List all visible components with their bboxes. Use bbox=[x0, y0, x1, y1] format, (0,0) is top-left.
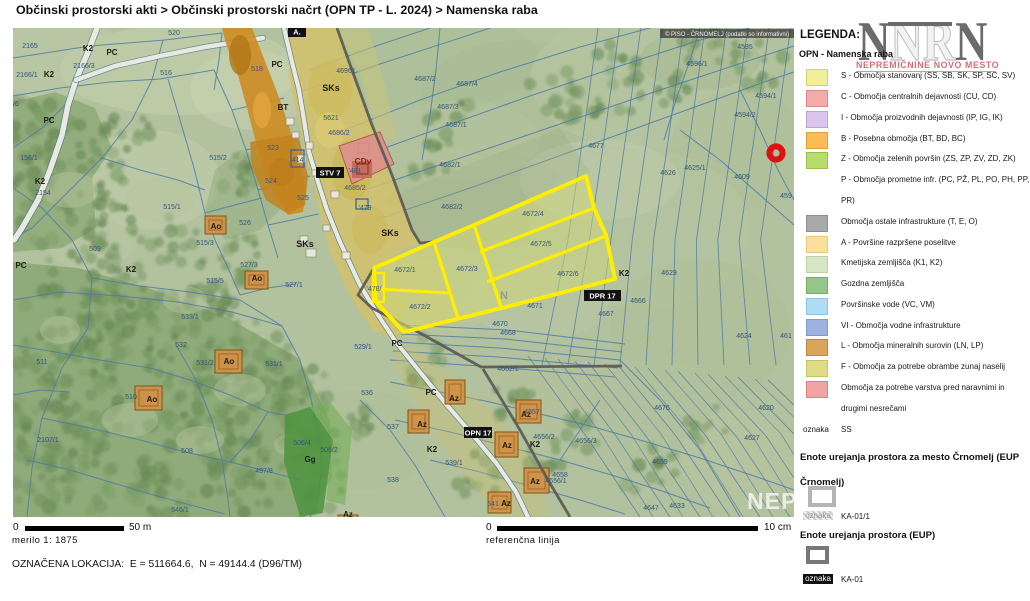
svg-text:4672/6: 4672/6 bbox=[557, 271, 579, 278]
svg-text:4666: 4666 bbox=[630, 298, 646, 305]
svg-text:539/1: 539/1 bbox=[445, 460, 463, 467]
svg-text:527/1: 527/1 bbox=[285, 282, 303, 289]
svg-text:4672/5: 4672/5 bbox=[530, 241, 552, 248]
svg-text:PC: PC bbox=[43, 116, 54, 125]
svg-text:157/6: 157/6 bbox=[13, 101, 19, 108]
svg-text:461: 461 bbox=[780, 333, 792, 340]
svg-text:4687/4: 4687/4 bbox=[456, 81, 478, 88]
svg-text:4594/2: 4594/2 bbox=[734, 112, 756, 119]
svg-text:4667: 4667 bbox=[598, 311, 614, 318]
svg-text:156/1: 156/1 bbox=[20, 155, 38, 162]
svg-text:BT: BT bbox=[278, 103, 289, 112]
svg-text:538: 538 bbox=[387, 477, 399, 484]
svg-text:K2: K2 bbox=[619, 269, 630, 278]
svg-text:526: 526 bbox=[239, 220, 251, 227]
svg-text:515/1: 515/1 bbox=[163, 204, 181, 211]
svg-text:516: 516 bbox=[160, 70, 172, 77]
svg-text:4671: 4671 bbox=[527, 303, 543, 310]
svg-text:532: 532 bbox=[175, 342, 187, 349]
svg-text:Az: Az bbox=[417, 420, 427, 429]
svg-text:459: 459 bbox=[780, 193, 792, 200]
svg-text:4620: 4620 bbox=[758, 405, 774, 412]
svg-text:4686/2: 4686/2 bbox=[328, 130, 350, 137]
svg-text:4685/2: 4685/2 bbox=[344, 185, 366, 192]
svg-text:529/1: 529/1 bbox=[354, 344, 372, 351]
svg-text:PC: PC bbox=[106, 48, 117, 57]
svg-text:Az: Az bbox=[502, 441, 512, 450]
svg-text:'414: '414 bbox=[290, 157, 303, 164]
svg-text:K2: K2 bbox=[530, 440, 541, 449]
svg-text:4668: 4668 bbox=[500, 330, 516, 337]
svg-text:537: 537 bbox=[387, 424, 399, 431]
svg-text:PC: PC bbox=[271, 60, 282, 69]
svg-text:Az: Az bbox=[449, 394, 459, 403]
svg-text:4594/1: 4594/1 bbox=[755, 93, 777, 100]
svg-text:536: 536 bbox=[361, 390, 373, 397]
svg-text:PC: PC bbox=[391, 339, 402, 348]
svg-text:Ao: Ao bbox=[211, 222, 222, 231]
svg-text:531/1: 531/1 bbox=[265, 361, 283, 368]
svg-text:4624: 4624 bbox=[736, 333, 752, 340]
svg-text:5621: 5621 bbox=[323, 115, 339, 122]
svg-text:541: 541 bbox=[487, 501, 499, 508]
svg-text:546/1: 546/1 bbox=[171, 507, 189, 514]
svg-text:Ao: Ao bbox=[252, 274, 263, 283]
svg-text:4656/3: 4656/3 bbox=[575, 438, 597, 445]
svg-text:4677: 4677 bbox=[588, 143, 604, 150]
svg-text:2166/1: 2166/1 bbox=[16, 72, 38, 79]
svg-text:Ao: Ao bbox=[147, 395, 158, 404]
svg-text:SKs: SKs bbox=[322, 83, 340, 93]
svg-text:531/2: 531/2 bbox=[196, 360, 214, 367]
svg-text:SKs: SKs bbox=[296, 239, 314, 249]
svg-text:4662/1: 4662/1 bbox=[497, 366, 519, 373]
svg-text:SKs: SKs bbox=[381, 228, 399, 238]
svg-text:4687/2: 4687/2 bbox=[414, 76, 436, 83]
svg-text:4595: 4595 bbox=[737, 44, 753, 51]
svg-text:Az: Az bbox=[530, 477, 540, 486]
svg-text:4596/1: 4596/1 bbox=[686, 61, 708, 68]
svg-text:520: 520 bbox=[168, 30, 180, 37]
svg-text:4656/1: 4656/1 bbox=[545, 478, 567, 485]
svg-text:© PISO - ČRNOMELJ (podatki so: © PISO - ČRNOMELJ (podatki so informativ… bbox=[665, 31, 789, 38]
svg-text:525: 525 bbox=[297, 195, 309, 202]
svg-text:'479: '479 bbox=[358, 205, 371, 212]
svg-text:46961: 46961 bbox=[336, 68, 356, 75]
svg-text:497/8: 497/8 bbox=[255, 468, 273, 475]
svg-text:4627: 4627 bbox=[744, 435, 760, 442]
svg-text:K2: K2 bbox=[83, 44, 94, 53]
svg-text:2107/1: 2107/1 bbox=[37, 437, 59, 444]
svg-text:PC: PC bbox=[15, 261, 26, 270]
svg-text:533/1: 533/1 bbox=[181, 314, 199, 321]
svg-text:509: 509 bbox=[89, 246, 101, 253]
svg-text:'481: '481 bbox=[348, 168, 361, 175]
svg-text:4672/1: 4672/1 bbox=[394, 267, 416, 274]
svg-text:OPN 17: OPN 17 bbox=[465, 429, 492, 438]
svg-text:K2: K2 bbox=[44, 70, 55, 79]
svg-text:4682/1: 4682/1 bbox=[439, 162, 461, 169]
svg-text:4626: 4626 bbox=[660, 170, 676, 177]
svg-text:'478/: '478/ bbox=[367, 286, 382, 293]
svg-text:523: 523 bbox=[267, 145, 279, 152]
svg-text:4672/2: 4672/2 bbox=[409, 304, 431, 311]
svg-text:4629: 4629 bbox=[661, 270, 677, 277]
svg-text:4670: 4670 bbox=[492, 321, 508, 328]
svg-text:4672/4: 4672/4 bbox=[522, 211, 544, 218]
svg-text:527/3: 527/3 bbox=[240, 262, 258, 269]
svg-text:NEP: NEP bbox=[747, 488, 794, 514]
svg-text:4676: 4676 bbox=[654, 405, 670, 412]
svg-text:K2: K2 bbox=[35, 177, 46, 186]
svg-text:K2: K2 bbox=[427, 445, 438, 454]
svg-text:4633: 4633 bbox=[669, 503, 685, 510]
svg-text:STV 7: STV 7 bbox=[320, 169, 341, 178]
svg-text:Az: Az bbox=[521, 410, 531, 419]
svg-text:508: 508 bbox=[181, 448, 193, 455]
svg-text:PC: PC bbox=[425, 388, 436, 397]
svg-text:515/5: 515/5 bbox=[206, 278, 224, 285]
svg-text:4647: 4647 bbox=[643, 505, 659, 512]
svg-text:4625/1: 4625/1 bbox=[684, 165, 706, 172]
svg-text:2165: 2165 bbox=[22, 43, 38, 50]
svg-text:4687/1: 4687/1 bbox=[445, 122, 467, 129]
svg-text:4672/3: 4672/3 bbox=[456, 266, 478, 273]
svg-text:2154: 2154 bbox=[35, 190, 51, 197]
svg-text:4659: 4659 bbox=[652, 459, 668, 466]
svg-text:Gg: Gg bbox=[304, 455, 315, 464]
svg-text:4609: 4609 bbox=[734, 174, 750, 181]
svg-text:511: 511 bbox=[36, 359, 47, 366]
svg-text:DPR 17: DPR 17 bbox=[589, 292, 615, 301]
svg-text:515/3: 515/3 bbox=[196, 240, 214, 247]
svg-text:506/2: 506/2 bbox=[320, 447, 338, 454]
svg-text:4682/2: 4682/2 bbox=[441, 204, 463, 211]
svg-text:Ao: Ao bbox=[224, 357, 235, 366]
svg-text:A.: A. bbox=[293, 28, 301, 37]
svg-text:515/2: 515/2 bbox=[209, 155, 227, 162]
svg-text:518: 518 bbox=[251, 66, 263, 73]
svg-text:Az: Az bbox=[343, 510, 353, 517]
svg-text:2166/3: 2166/3 bbox=[73, 63, 95, 70]
svg-text:N: N bbox=[500, 290, 508, 302]
svg-text:CDv: CDv bbox=[354, 156, 371, 166]
svg-text:4687/3: 4687/3 bbox=[437, 104, 459, 111]
svg-text:Az: Az bbox=[501, 499, 511, 508]
svg-text:510: 510 bbox=[125, 394, 137, 401]
svg-text:K2: K2 bbox=[126, 265, 137, 274]
svg-text:524: 524 bbox=[265, 178, 277, 185]
svg-text:506/4: 506/4 bbox=[293, 440, 311, 447]
